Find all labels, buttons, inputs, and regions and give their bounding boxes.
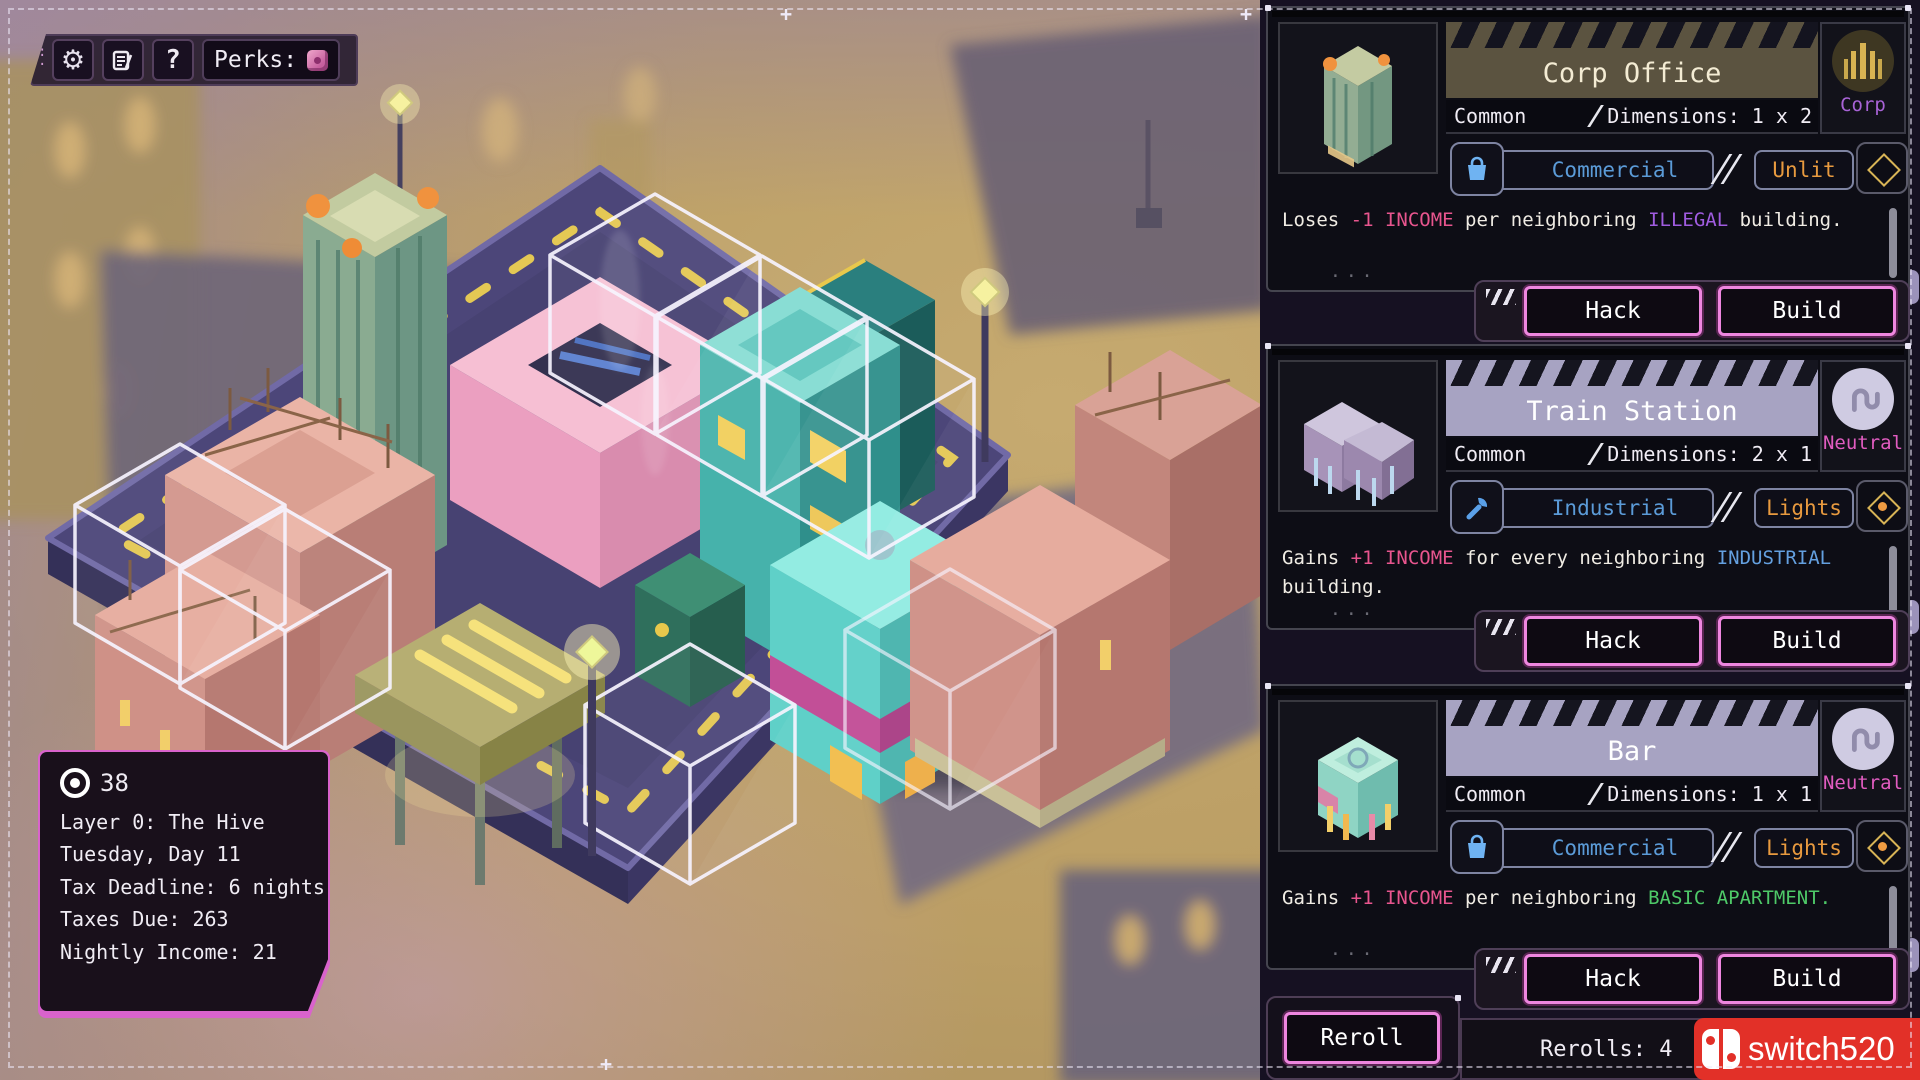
bar-building: [1280, 702, 1436, 850]
faction-badge: Neutral: [1820, 700, 1906, 812]
corner-node: [1265, 5, 1271, 11]
card-title-bar: Train Station: [1446, 360, 1818, 436]
card-meta-row: Common Dimensions: 2 x 1: [1446, 438, 1818, 472]
desc-segment: .: [1820, 887, 1831, 909]
rarity-label: Common: [1446, 104, 1526, 128]
train-station-thumbnail: [1278, 360, 1438, 512]
description-scrollbar[interactable]: [1889, 546, 1897, 616]
desc-segment: +1 INCOME: [1351, 887, 1454, 909]
light-diamond-tile: [1856, 142, 1908, 194]
card-actions-tray: Hack Build: [1474, 610, 1910, 672]
building-card-corp-office[interactable]: Corp Office Corp Common Dimensions: [1266, 6, 1910, 292]
build-hand-panel: Corp Office Corp Common Dimensions: [1260, 0, 1920, 1080]
frame-plus-mark: +: [780, 2, 792, 26]
light-label: Lights: [1766, 836, 1842, 860]
corner-node: [1905, 683, 1911, 689]
reroll-tray: Reroll: [1266, 996, 1460, 1080]
desc-segment: for every neighboring: [1454, 547, 1717, 569]
shopping-bag-icon: [1463, 833, 1491, 861]
hack-button[interactable]: Hack: [1524, 954, 1702, 1004]
card-meta-row: Common Dimensions: 1 x 2: [1446, 100, 1818, 134]
watermark: switch520: [1694, 1018, 1920, 1080]
news-button[interactable]: [102, 39, 144, 81]
category-tag: Commercial: [1490, 150, 1714, 190]
category-icon-tile: [1450, 480, 1504, 534]
card-actions-tray: Hack Build: [1474, 948, 1910, 1010]
card-title: Corp Office: [1543, 58, 1722, 89]
desc-segment: per neighboring: [1454, 209, 1648, 231]
build-button[interactable]: Build: [1718, 286, 1896, 336]
slash-divider: [1571, 443, 1604, 465]
faction-label: Neutral: [1822, 772, 1904, 794]
light-label: Unlit: [1772, 158, 1835, 182]
card-footer-dots: ···: [1330, 266, 1378, 287]
slash-divider: [1571, 783, 1604, 805]
light-dot-icon: [1878, 842, 1887, 851]
corner-node: [1905, 5, 1911, 11]
neutral-hook-icon: [1840, 376, 1886, 422]
faction-badge: Neutral: [1820, 360, 1906, 472]
corner-node: [1265, 683, 1271, 689]
nightly-income-label: Nightly Income: 21: [60, 936, 314, 968]
settings-button[interactable]: ⚙: [52, 39, 94, 81]
light-tag: Lights: [1754, 828, 1854, 868]
faction-label: Neutral: [1822, 432, 1904, 454]
rerolls-count: Rerolls: 4: [1462, 1037, 1672, 1062]
watermark-text: switch520: [1748, 1030, 1895, 1068]
coin-icon: [60, 768, 90, 798]
toolbar: :. ⚙ ? Perks:: [30, 34, 358, 86]
light-tag: Lights: [1754, 488, 1854, 528]
bar-thumbnail: [1278, 700, 1438, 852]
light-diamond-tile: [1856, 820, 1908, 872]
desc-segment: per neighboring: [1454, 887, 1648, 909]
diamond-icon: [1867, 153, 1901, 187]
hazard-stripes: [1446, 700, 1818, 726]
desc-segment: Loses: [1282, 209, 1351, 231]
card-title-bar: Bar: [1446, 700, 1818, 776]
category-icon-tile: [1450, 820, 1504, 874]
faction-badge: Corp: [1820, 22, 1906, 134]
shopping-bag-icon: [1463, 155, 1491, 183]
card-meta-row: Common Dimensions: 1 x 1: [1446, 778, 1818, 812]
description-scrollbar[interactable]: [1889, 208, 1897, 278]
corp-office-building: [1280, 24, 1436, 172]
card-description: Loses -1 INCOME per neighboring ILLEGAL …: [1282, 206, 1878, 235]
light-tag: Unlit: [1754, 150, 1854, 190]
neutral-hook-icon: [1840, 716, 1886, 762]
card-description: Gains +1 INCOME per neighboring BASIC AP…: [1282, 884, 1878, 913]
light-diamond-tile: [1856, 480, 1908, 532]
description-scrollbar[interactable]: [1889, 886, 1897, 956]
reroll-button[interactable]: Reroll: [1284, 1012, 1440, 1064]
perks-label: Perks:: [214, 47, 297, 73]
question-icon: ?: [165, 45, 181, 75]
build-button[interactable]: Build: [1718, 616, 1896, 666]
hazard-stripes: [1446, 22, 1818, 48]
taxes-due-label: Taxes Due: 263: [60, 903, 314, 935]
category-label: Industrial: [1552, 496, 1678, 520]
building-card-bar[interactable]: Bar Neutral Common Dimensions: 1 x 1: [1266, 684, 1910, 970]
frame-plus-mark: +: [1240, 2, 1252, 26]
tag-connector: [1720, 154, 1746, 184]
gear-icon: ⚙: [61, 47, 85, 74]
light-label: Lights: [1766, 496, 1842, 520]
desc-segment: ILLEGAL: [1648, 209, 1728, 231]
desc-segment: building.: [1282, 576, 1385, 598]
card-title: Train Station: [1526, 396, 1737, 427]
light-dot-icon: [1878, 502, 1887, 511]
card-description: Gains +1 INCOME for every neighboring IN…: [1282, 544, 1878, 601]
card-footer-dots: ···: [1330, 604, 1378, 625]
faction-label: Corp: [1822, 94, 1904, 116]
dimensions-label: Dimensions: 1 x 1: [1607, 782, 1818, 806]
corner-node: [1455, 995, 1461, 1001]
card-title-bar: Corp Office: [1446, 22, 1818, 98]
category-tag: Commercial: [1490, 828, 1714, 868]
help-button[interactable]: ?: [152, 39, 194, 81]
news-icon: [111, 48, 135, 72]
day-label: Tuesday, Day 11: [60, 838, 314, 870]
card-actions-tray: Hack Build: [1474, 280, 1910, 342]
layer-label: Layer 0: The Hive: [60, 806, 314, 838]
money-value: 38: [100, 769, 129, 797]
build-button[interactable]: Build: [1718, 954, 1896, 1004]
perk-die-icon: [307, 50, 328, 71]
hazard-stripes: [1446, 360, 1818, 386]
train-station-building: [1280, 362, 1436, 510]
desc-segment: INDUSTRIAL: [1717, 547, 1831, 569]
slash-divider: [1571, 105, 1604, 127]
status-panel: 38 Layer 0: The Hive Tuesday, Day 11 Tax…: [38, 750, 330, 1018]
desc-segment: +1 INCOME: [1351, 547, 1454, 569]
dimensions-label: Dimensions: 2 x 1: [1607, 442, 1818, 466]
hack-button[interactable]: Hack: [1524, 286, 1702, 336]
category-label: Commercial: [1552, 158, 1678, 182]
frame-plus-mark: +: [600, 1052, 612, 1076]
perks-chip[interactable]: Perks:: [202, 39, 340, 81]
rarity-label: Common: [1446, 442, 1526, 466]
card-footer-dots: ···: [1330, 944, 1378, 965]
category-label: Commercial: [1552, 836, 1678, 860]
hack-button[interactable]: Hack: [1524, 616, 1702, 666]
desc-segment: -1 INCOME: [1351, 209, 1454, 231]
wrench-icon: [1463, 493, 1491, 521]
corner-node: [1265, 343, 1271, 349]
desc-segment: building.: [1728, 209, 1842, 231]
category-icon-tile: [1450, 142, 1504, 196]
dimensions-label: Dimensions: 1 x 2: [1607, 104, 1818, 128]
building-card-train-station[interactable]: Train Station Neutral Common Dimensions:…: [1266, 344, 1910, 630]
tag-connector: [1720, 492, 1746, 522]
card-title: Bar: [1608, 736, 1657, 767]
switch-logo-icon: [1702, 1027, 1742, 1071]
game-screen: + + + :. ⚙ ? Perks: 38: [0, 0, 1920, 1080]
tag-connector: [1720, 832, 1746, 862]
category-tag: Industrial: [1490, 488, 1714, 528]
rarity-label: Common: [1446, 782, 1526, 806]
tax-deadline-label: Tax Deadline: 6 nights: [60, 871, 314, 903]
desc-segment: BASIC APARTMENT: [1648, 887, 1820, 909]
corp-office-thumbnail: [1278, 22, 1438, 174]
corner-node: [1905, 343, 1911, 349]
desc-segment: Gains: [1282, 887, 1351, 909]
corp-tower-icon: [1841, 39, 1885, 83]
desc-segment: Gains: [1282, 547, 1351, 569]
